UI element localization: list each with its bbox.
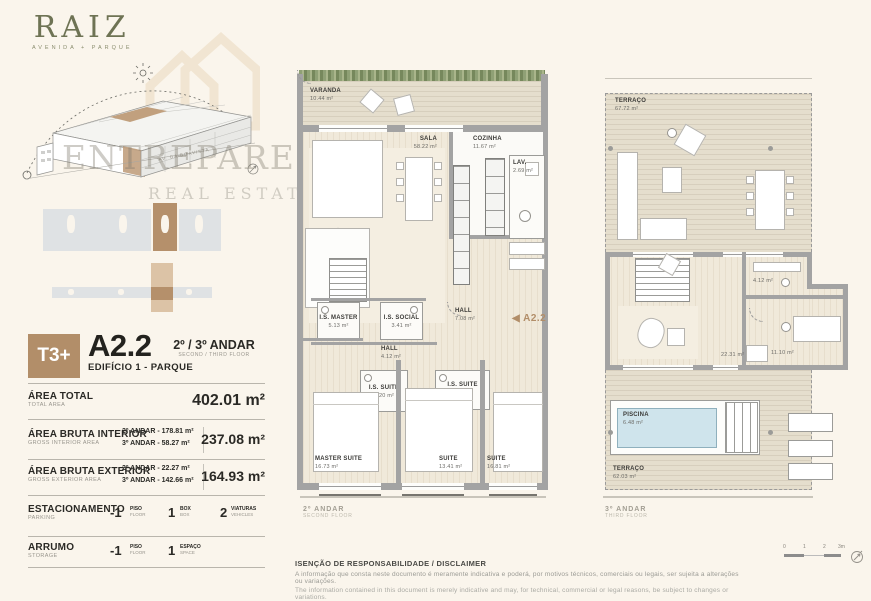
chair xyxy=(786,176,794,184)
disclaimer: ISENÇÃO DE RESPONSABILIDADE / DISCLAIMER… xyxy=(295,559,740,601)
room-label-varanda: VARANDA 10.44 m² xyxy=(310,88,341,103)
room-label-escritorio: 11.10 m² xyxy=(771,350,794,357)
unit-floors: 2º / 3º ANDAR SECOND / THIRD FLOOR xyxy=(163,338,265,358)
cabinet xyxy=(746,345,768,362)
chair xyxy=(746,208,754,216)
floorplan-third-floor: TERRAÇO 67.72 m² 4.12 m² 22.31 m² 11.10 … xyxy=(603,78,853,538)
dining-table xyxy=(405,157,433,221)
room-label-suite-2: SUITE 16.81 m² xyxy=(487,456,510,471)
parking-box-num: 1 xyxy=(168,505,175,520)
divider xyxy=(28,536,265,537)
room-label-terraco-sup: TERRAÇO 67.72 m² xyxy=(615,98,646,113)
room-label-cozinha: COZINHA 11.67 m² xyxy=(473,136,502,151)
area-total-value: 402.01 m² xyxy=(140,392,265,410)
sun-icon xyxy=(133,63,153,83)
outdoor-sofa xyxy=(617,152,638,240)
room-label-master-suite: MASTER SUITE 16.73 m² xyxy=(315,456,362,471)
highlighted-unit xyxy=(151,287,173,300)
room-label-terraco-inf: TERRAÇO 62.03 m² xyxy=(613,466,644,481)
desk xyxy=(753,262,801,272)
office-chair xyxy=(781,322,791,332)
north-compass-icon xyxy=(849,548,865,564)
section-line xyxy=(605,78,812,79)
skylight xyxy=(788,413,833,432)
disclaimer-en: The information contained in this docume… xyxy=(295,587,740,601)
kitchen-island xyxy=(453,165,470,285)
outdoor-dining-table xyxy=(755,170,785,230)
room-label-sala-mezanino: 22.31 m² xyxy=(721,352,744,359)
pool-steps xyxy=(725,402,758,453)
area-exterior-value: 164.93 m² xyxy=(200,468,265,484)
window xyxy=(405,125,463,132)
disclaimer-title: ISENÇÃO DE RESPONSABILIDADE / DISCLAIMER xyxy=(295,559,740,568)
kitchen-counter xyxy=(485,158,505,236)
staircase xyxy=(329,258,367,302)
parking-box-unit: BOX BOX xyxy=(180,506,191,518)
chair xyxy=(434,178,442,186)
chair xyxy=(786,208,794,216)
area-interior-value: 237.08 m² xyxy=(200,431,265,447)
storage-floor-unit: PISO FLOOR xyxy=(130,544,146,556)
sink xyxy=(519,210,531,222)
parking-vehicles-unit: VIATURAS VEHICLES xyxy=(231,506,256,518)
chair xyxy=(746,176,754,184)
disclaimer-pt: A informação que consta neste documento … xyxy=(295,571,740,585)
sofa xyxy=(312,140,383,218)
window xyxy=(319,125,387,132)
area-interior-line2: 3º ANDAR - 58.27 m² xyxy=(122,440,190,447)
window xyxy=(319,483,381,490)
wardrobe xyxy=(509,242,545,255)
storage-floor-num: -1 xyxy=(110,543,122,558)
outdoor-sofa xyxy=(640,218,687,240)
coffee-table xyxy=(662,167,682,193)
wardrobe xyxy=(509,258,545,270)
room-label-piscina: PISCINA 6.48 m² xyxy=(623,412,649,427)
toilet xyxy=(410,306,418,314)
area-interior-line1: 2º ANDAR - 178.81 m² xyxy=(122,428,194,435)
brand-logo: RAIZ AVENIDA + PARQUE xyxy=(32,10,133,51)
area-exterior-line2: 3º ANDAR - 142.66 m² xyxy=(122,477,194,484)
office-desk xyxy=(793,316,841,342)
site-strip-plan xyxy=(52,263,212,313)
parking-floor-unit: PISO FLOOR xyxy=(130,506,146,518)
room-label-lav: LAV. 2.69 m² xyxy=(513,160,533,175)
room-label-is: 4.12 m² xyxy=(753,278,773,285)
chair xyxy=(746,192,754,200)
logo-tagline: AVENIDA + PARQUE xyxy=(32,45,133,51)
marker-arrow-icon: ◀ xyxy=(512,313,520,324)
window xyxy=(489,483,537,490)
storage-space-num: 1 xyxy=(168,543,175,558)
skylight xyxy=(788,463,833,480)
parking-floor-num: -1 xyxy=(110,505,122,520)
plan3-caption: 3º ANDAR THIRD FLOOR xyxy=(605,506,648,519)
area-exterior-line1: 2º ANDAR - 22.27 m² xyxy=(122,465,190,472)
typology-badge: T3+ xyxy=(28,334,80,378)
toilet xyxy=(321,306,329,314)
chair xyxy=(396,162,404,170)
logo-text: RAIZ xyxy=(32,10,133,45)
window xyxy=(723,252,783,257)
unit-marker: ◀ A2.2 xyxy=(512,313,546,324)
divider xyxy=(28,567,265,568)
section-line xyxy=(300,496,546,498)
divider xyxy=(28,495,265,496)
scale-bar: 0 1 2 3m xyxy=(783,544,871,564)
divider xyxy=(28,419,265,420)
chair xyxy=(396,194,404,202)
area-total-row: ÁREA TOTAL TOTAL AREA xyxy=(28,391,93,408)
unit-code: A2.2 xyxy=(88,328,151,364)
chair xyxy=(396,178,404,186)
room-label-hall-lower: HALL 4.12 m² xyxy=(381,346,401,361)
side-table xyxy=(667,328,685,346)
hedge xyxy=(299,70,545,81)
toilet xyxy=(364,374,372,382)
site-strip-elevation xyxy=(43,203,221,251)
storage-row: ARRUMO STORAGE xyxy=(28,542,74,559)
divider xyxy=(28,383,265,384)
storage-space-unit: ESPAÇO SPACE xyxy=(180,544,201,556)
window xyxy=(402,483,464,490)
planter xyxy=(667,128,677,138)
divider xyxy=(28,459,265,460)
room-label-is-master: I.S. MASTER 5.13 m² xyxy=(317,315,360,330)
toilet xyxy=(439,374,447,382)
floorplan-second-floor: VARANDA 10.44 m² SALA 58.22 m² COZINHA 1… xyxy=(297,70,548,530)
skylight xyxy=(788,440,833,457)
chair xyxy=(434,194,442,202)
parking-vehicles-num: 2 xyxy=(220,505,227,520)
watermark-text2: REAL ESTATE xyxy=(148,184,319,203)
chair xyxy=(434,162,442,170)
room-label-is-social: I.S. SOCIAL 3.41 m² xyxy=(380,315,423,330)
plan2-caption: 2º ANDAR SECOND FLOOR xyxy=(303,506,353,519)
chair xyxy=(786,192,794,200)
unit-building: EDIFÍCIO 1 - PARQUE xyxy=(88,362,193,373)
stool xyxy=(781,278,790,287)
room-label-suite-1: SUITE 13.41 m² xyxy=(439,456,462,471)
section-line xyxy=(603,496,813,498)
